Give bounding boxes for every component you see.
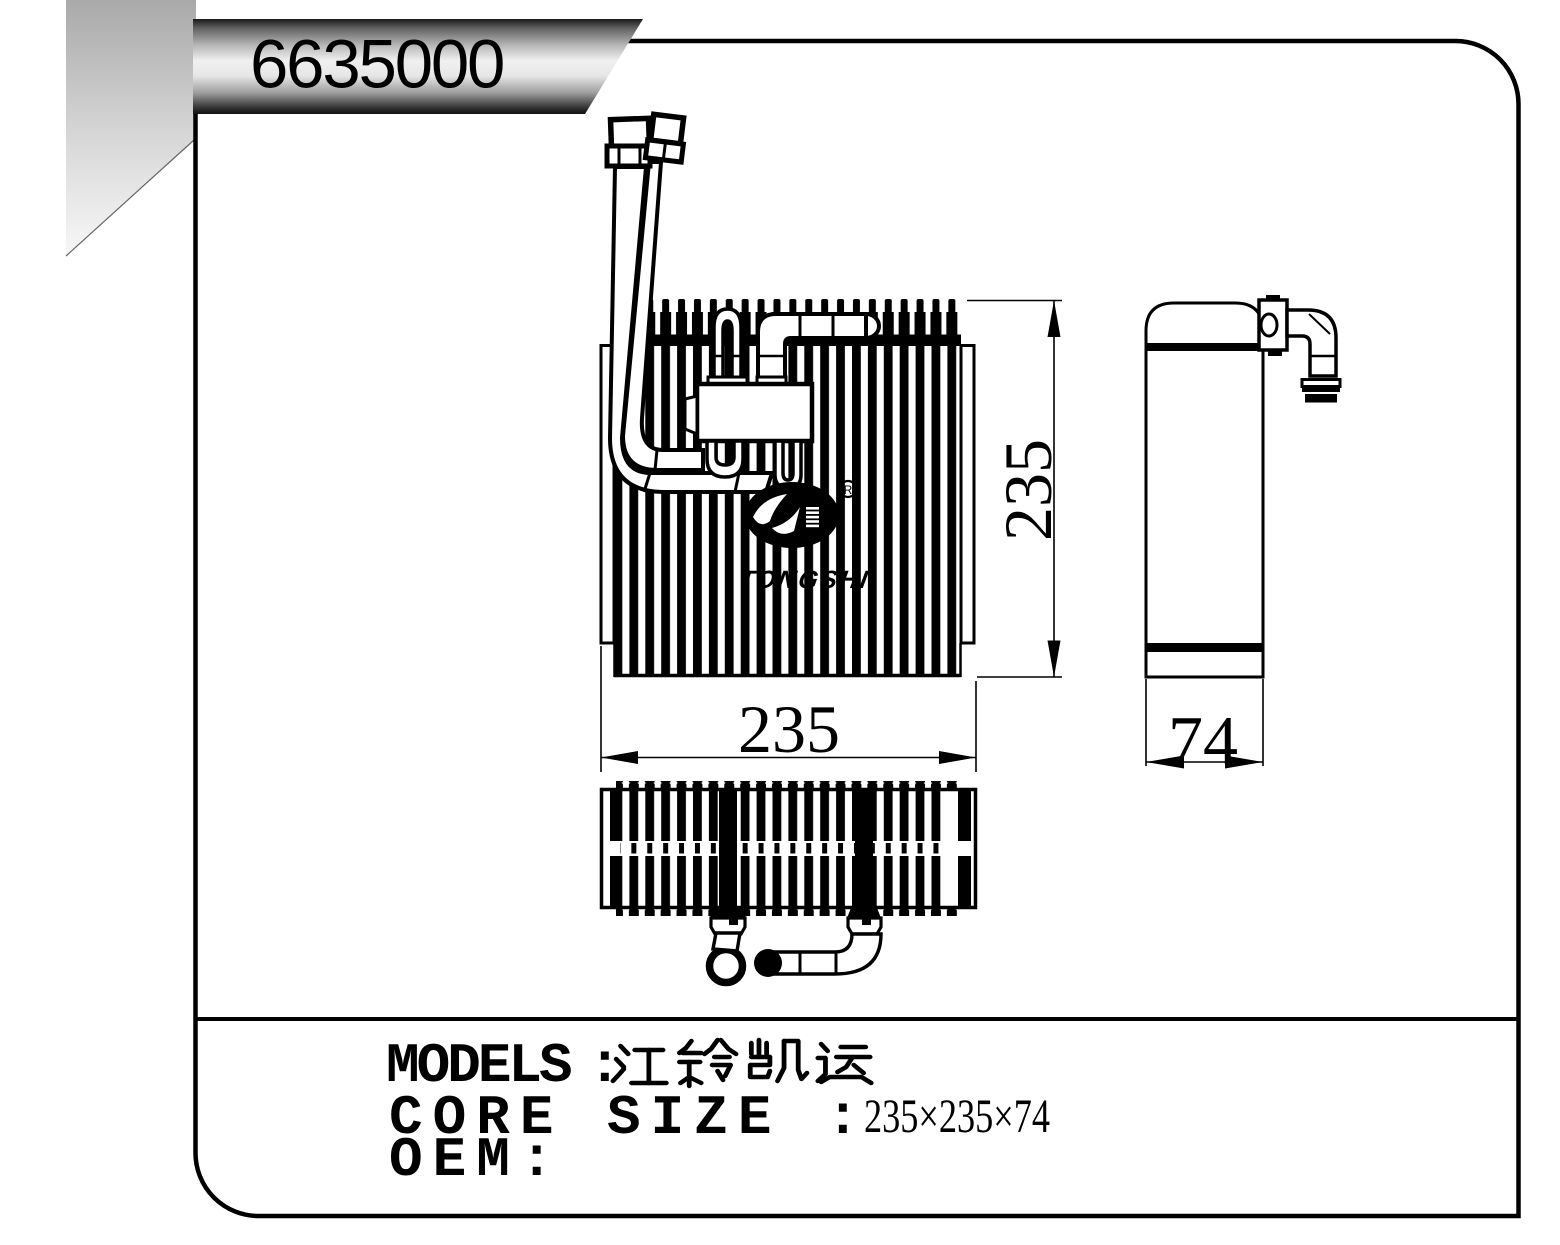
svg-text:235: 235 <box>738 691 840 767</box>
svg-text:235: 235 <box>990 439 1066 541</box>
svg-text:74: 74 <box>1168 703 1238 780</box>
svg-text:TONGSHI: TONGSHI <box>736 566 872 594</box>
svg-text:6635000: 6635000 <box>250 26 503 103</box>
svg-text::: : <box>826 1086 860 1150</box>
svg-text:R: R <box>844 483 853 497</box>
svg-text:235×235×74: 235×235×74 <box>864 1090 1050 1143</box>
svg-text:OEM:: OEM: <box>389 1128 563 1192</box>
